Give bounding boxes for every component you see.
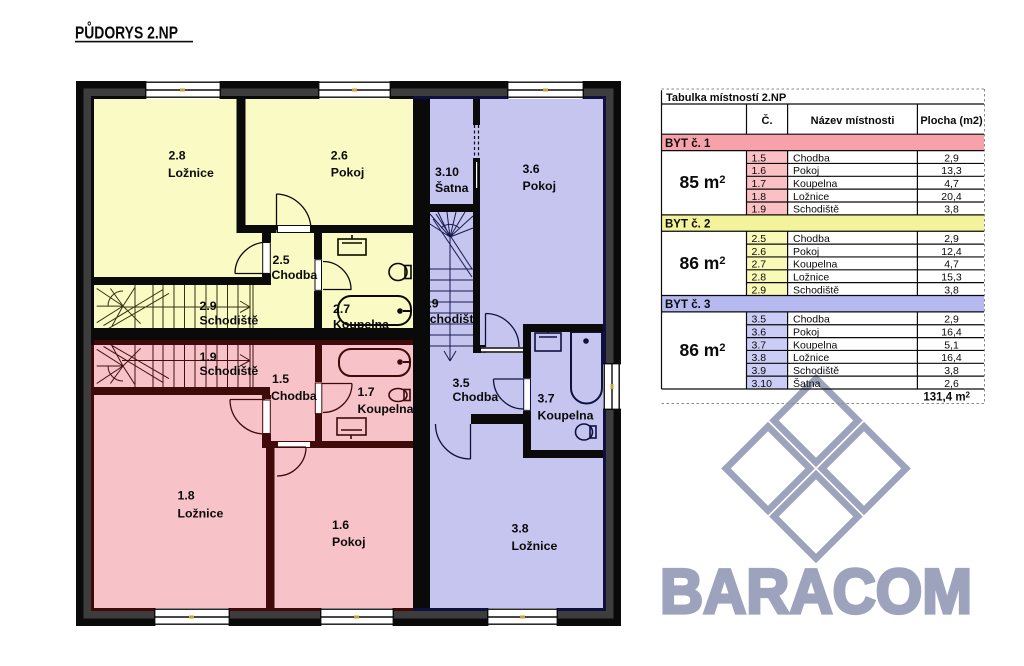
svg-text:Koupelna: Koupelna bbox=[793, 339, 838, 351]
svg-text:1.5: 1.5 bbox=[272, 372, 289, 386]
svg-text:15,3: 15,3 bbox=[941, 271, 962, 283]
svg-text:86 m2: 86 m2 bbox=[679, 340, 725, 360]
svg-text:3.10: 3.10 bbox=[435, 165, 459, 179]
svg-text:1.9: 1.9 bbox=[752, 204, 767, 216]
svg-text:4,7: 4,7 bbox=[944, 259, 959, 271]
svg-text:Koupelna: Koupelna bbox=[793, 259, 838, 271]
svg-text:Plocha (m2): Plocha (m2) bbox=[920, 115, 983, 127]
svg-text:2,9: 2,9 bbox=[944, 152, 959, 164]
svg-text:PŮDORYS 2.NP: PŮDORYS 2.NP bbox=[75, 23, 178, 43]
svg-text:Koupelna: Koupelna bbox=[358, 402, 414, 416]
svg-text:Koupelna: Koupelna bbox=[333, 318, 389, 332]
svg-text:12,4: 12,4 bbox=[941, 246, 962, 258]
svg-text:Chodba: Chodba bbox=[453, 390, 499, 404]
svg-text:4,7: 4,7 bbox=[944, 178, 959, 190]
svg-text:Pokoj: Pokoj bbox=[332, 535, 365, 549]
svg-text:Ložnice: Ložnice bbox=[793, 191, 829, 203]
svg-text:3.9: 3.9 bbox=[752, 365, 767, 377]
svg-text:Ložnice: Ložnice bbox=[168, 166, 214, 180]
svg-text:85 m2: 85 m2 bbox=[679, 172, 725, 192]
svg-text:3.9: 3.9 bbox=[422, 297, 439, 311]
svg-text:2.6: 2.6 bbox=[331, 149, 348, 163]
svg-text:3.7: 3.7 bbox=[538, 392, 555, 406]
svg-text:Schodiště: Schodiště bbox=[422, 312, 481, 326]
svg-text:2.6: 2.6 bbox=[752, 246, 767, 258]
svg-text:BYT č. 2: BYT č. 2 bbox=[665, 218, 710, 230]
svg-text:3.5: 3.5 bbox=[453, 376, 470, 390]
svg-text:Ložnice: Ložnice bbox=[512, 539, 558, 553]
svg-text:Pokoj: Pokoj bbox=[793, 165, 819, 177]
svg-text:1.8: 1.8 bbox=[178, 489, 195, 503]
svg-text:3.8: 3.8 bbox=[512, 522, 529, 536]
svg-text:Chodba: Chodba bbox=[272, 268, 318, 282]
svg-text:1.7: 1.7 bbox=[358, 385, 375, 399]
svg-text:2.5: 2.5 bbox=[752, 233, 767, 245]
svg-text:3.6: 3.6 bbox=[752, 326, 767, 338]
svg-text:3,8: 3,8 bbox=[944, 284, 959, 296]
svg-text:2.8: 2.8 bbox=[752, 271, 767, 283]
svg-text:Č.: Č. bbox=[762, 114, 773, 127]
svg-text:Pokoj: Pokoj bbox=[793, 246, 819, 258]
svg-text:2,6: 2,6 bbox=[944, 378, 959, 390]
svg-text:Název místnosti: Název místnosti bbox=[811, 115, 895, 127]
svg-text:Ložnice: Ložnice bbox=[793, 352, 829, 364]
svg-text:Pokoj: Pokoj bbox=[793, 326, 819, 338]
svg-text:BYT č. 3: BYT č. 3 bbox=[665, 299, 710, 311]
svg-text:3.7: 3.7 bbox=[752, 339, 767, 351]
svg-text:1.9: 1.9 bbox=[200, 350, 217, 364]
svg-text:3,8: 3,8 bbox=[944, 365, 959, 377]
svg-text:2.8: 2.8 bbox=[169, 149, 186, 163]
svg-text:Šatna: Šatna bbox=[435, 180, 469, 195]
svg-text:86 m2: 86 m2 bbox=[679, 253, 725, 273]
svg-text:Koupelna: Koupelna bbox=[538, 409, 594, 423]
svg-text:Ložnice: Ložnice bbox=[793, 271, 829, 283]
svg-text:Schodiště: Schodiště bbox=[200, 314, 259, 328]
svg-text:Pokoj: Pokoj bbox=[331, 166, 364, 180]
svg-text:BARACOM: BARACOM bbox=[660, 557, 972, 627]
svg-text:Schodiště: Schodiště bbox=[793, 204, 839, 216]
svg-text:Schodiště: Schodiště bbox=[200, 364, 259, 378]
svg-text:131,4 m2: 131,4 m2 bbox=[923, 391, 970, 404]
svg-text:1.6: 1.6 bbox=[332, 518, 349, 532]
svg-text:16,4: 16,4 bbox=[941, 326, 962, 338]
svg-text:2,9: 2,9 bbox=[944, 233, 959, 245]
svg-text:5,1: 5,1 bbox=[944, 339, 959, 351]
svg-text:Šatna: Šatna bbox=[793, 377, 821, 390]
svg-text:Tabulka místností 2.NP: Tabulka místností 2.NP bbox=[666, 92, 786, 104]
svg-text:Pokoj: Pokoj bbox=[523, 179, 556, 193]
svg-text:Chodba: Chodba bbox=[793, 152, 830, 164]
svg-text:Chodba: Chodba bbox=[793, 314, 830, 326]
svg-text:1.8: 1.8 bbox=[752, 191, 767, 203]
svg-text:2.7: 2.7 bbox=[752, 259, 767, 271]
svg-text:3.8: 3.8 bbox=[752, 352, 767, 364]
svg-text:2.9: 2.9 bbox=[200, 299, 217, 313]
svg-text:2.9: 2.9 bbox=[752, 284, 767, 296]
svg-text:1.5: 1.5 bbox=[752, 152, 767, 164]
svg-text:20,4: 20,4 bbox=[941, 191, 962, 203]
svg-text:Chodba: Chodba bbox=[793, 233, 830, 245]
svg-text:3,8: 3,8 bbox=[944, 204, 959, 216]
svg-text:Chodba: Chodba bbox=[271, 389, 317, 403]
svg-text:Schodiště: Schodiště bbox=[793, 365, 839, 377]
svg-text:2.5: 2.5 bbox=[273, 253, 290, 267]
svg-text:Ložnice: Ložnice bbox=[178, 507, 224, 521]
svg-text:BYT č. 1: BYT č. 1 bbox=[665, 138, 711, 150]
svg-text:Koupelna: Koupelna bbox=[793, 178, 838, 190]
svg-text:13,3: 13,3 bbox=[941, 165, 962, 177]
svg-text:2,9: 2,9 bbox=[944, 314, 959, 326]
svg-text:1.6: 1.6 bbox=[752, 165, 767, 177]
svg-text:1.7: 1.7 bbox=[752, 178, 767, 190]
svg-text:3.6: 3.6 bbox=[523, 162, 540, 176]
svg-text:Schodiště: Schodiště bbox=[793, 284, 839, 296]
svg-text:2.7: 2.7 bbox=[333, 302, 350, 316]
svg-text:16,4: 16,4 bbox=[941, 352, 962, 364]
svg-text:3.5: 3.5 bbox=[752, 314, 767, 326]
svg-text:3.10: 3.10 bbox=[752, 378, 773, 390]
